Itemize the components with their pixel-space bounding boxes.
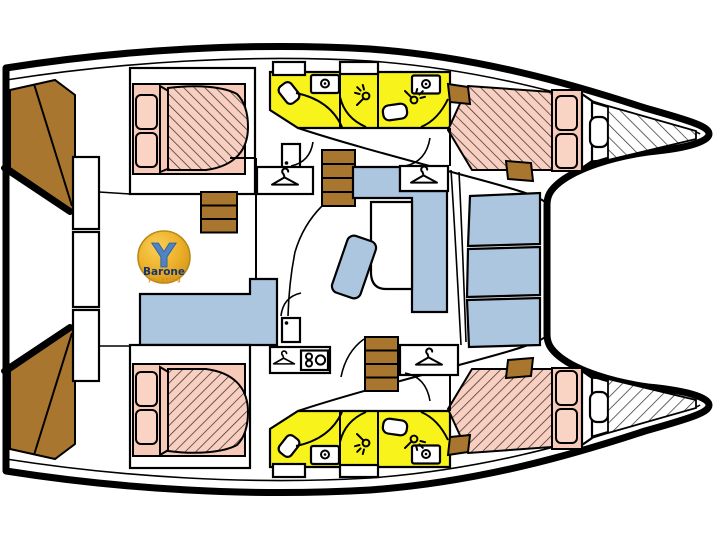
cabin-step (448, 435, 470, 455)
mattress (168, 369, 248, 453)
pillow (556, 96, 577, 130)
logo-subtitle: yachting (148, 278, 182, 284)
pillow (556, 409, 577, 443)
bathrooms-port (270, 62, 450, 128)
staircase-port-hull (322, 150, 355, 206)
wardrobe-bottom-right (400, 345, 458, 375)
cabinet (340, 465, 378, 477)
cabinet (273, 62, 305, 75)
forward-cockpit-seats (467, 193, 540, 347)
sink-icon (311, 446, 339, 464)
companionway-steps-port-aft (201, 192, 237, 233)
logo-badge: Y Barone yachting (138, 231, 190, 284)
sink-unit-bottom (270, 347, 330, 373)
wardrobe-top-right (400, 166, 448, 191)
pillow (136, 95, 157, 129)
deck-plan-drawing: Y Barone yachting (0, 0, 720, 539)
pillow (556, 371, 577, 405)
logo-name: Barone (143, 266, 185, 278)
catamaran-deck-plan: Y Barone yachting (0, 0, 720, 539)
door-icon (282, 318, 300, 342)
aft-cabin-starboard (130, 345, 250, 468)
bathrooms-starboard (270, 411, 450, 477)
sink-icon (311, 75, 339, 93)
cabin-step (506, 161, 533, 181)
staircase-starboard-hull (365, 337, 398, 391)
nav-seat (371, 202, 412, 289)
bow-seat (590, 117, 608, 147)
toilet (382, 418, 408, 436)
cockpit-bench-lockers (73, 157, 99, 381)
pillow (136, 133, 157, 167)
cabin-step (448, 84, 470, 104)
aft-cabin-port (130, 68, 255, 194)
pillow (136, 372, 157, 406)
cabin-step (506, 358, 533, 378)
pillow (136, 410, 157, 444)
pillow (556, 134, 577, 168)
wardrobe-top-left (257, 167, 313, 194)
bow-seat (590, 392, 608, 422)
cabinet (273, 464, 305, 477)
toilet (382, 103, 408, 121)
cabinet (340, 62, 378, 74)
